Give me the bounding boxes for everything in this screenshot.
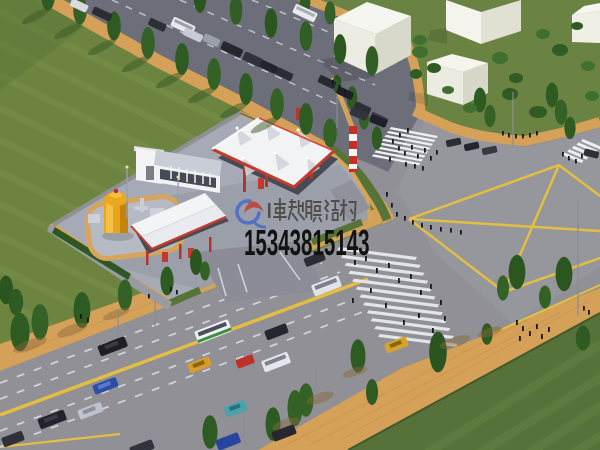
svg-text:15343815143: 15343815143 [244, 223, 370, 264]
